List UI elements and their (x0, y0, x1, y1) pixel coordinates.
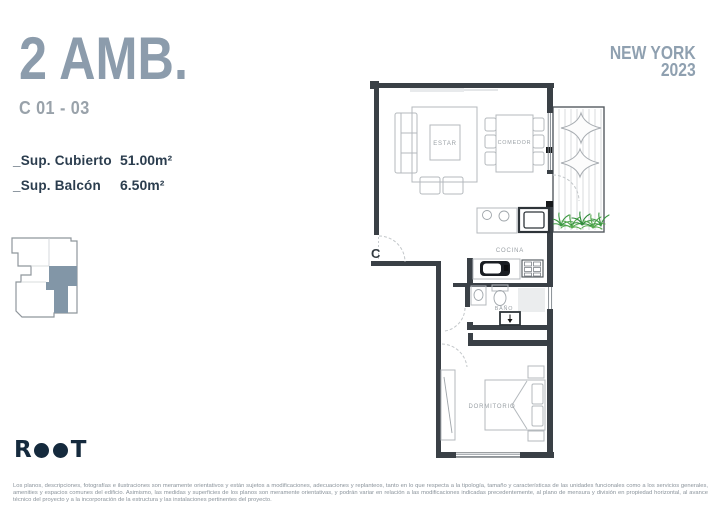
surface-value: 51.00m² (120, 152, 172, 168)
logo-letter-t: T (71, 441, 86, 459)
bathroom-label: BAÑO (495, 305, 513, 312)
bath-sink (471, 286, 486, 305)
surface-table: _Sup. Cubierto 51.00m² _Sup. Balcón 6.50… (13, 152, 243, 202)
pouf (420, 177, 440, 194)
logo-letter-r: R (14, 441, 31, 459)
brand-block: NEW YORK 2023 (610, 45, 696, 79)
curtain (410, 88, 464, 92)
chair (485, 135, 496, 148)
legal-disclaimer: Los planos, descripciones, fotografías e… (13, 483, 708, 505)
living-window (548, 113, 552, 170)
chair (533, 135, 544, 148)
living-label: ESTAR (433, 141, 457, 147)
bedroom: DORMITORIO (441, 366, 545, 441)
entry-door-arc (379, 236, 405, 262)
pantry-unit (522, 260, 543, 277)
bath-door-arc (445, 308, 465, 331)
logo-letter-o: O (53, 443, 68, 458)
laundry-area (518, 288, 545, 312)
sofa (395, 113, 417, 173)
title-block: 2 AMB. C 01 - 03 (19, 33, 220, 119)
living-room: ESTAR (395, 88, 498, 194)
dining-label: COMEDOR (498, 140, 532, 146)
surface-label: _Sup. Cubierto (13, 153, 120, 168)
surface-row-cubierto: _Sup. Cubierto 51.00m² (13, 152, 243, 168)
logo-letter-o: O (34, 443, 49, 458)
pillow (532, 406, 543, 426)
root-logo: R O O T (14, 441, 85, 459)
balcony (550, 107, 609, 232)
chair (485, 152, 496, 165)
kitchen-counter (477, 208, 517, 233)
pillow (532, 384, 543, 404)
bedroom-door-arc (442, 344, 467, 367)
nightstand (528, 366, 544, 378)
sink-bowl (499, 211, 509, 221)
chair (533, 152, 544, 165)
brand-line2: 2023 (610, 62, 696, 79)
bedroom-label: DORMITORIO (469, 404, 516, 410)
pouf (443, 177, 463, 194)
kitchen: COCINA (473, 208, 549, 279)
chair (485, 118, 496, 131)
unit-range: C 01 - 03 (19, 98, 200, 119)
floorplan: ESTAR COMEDOR COCINA (370, 75, 610, 465)
entrance-label: C (371, 246, 381, 261)
keyplan (6, 228, 106, 328)
surface-value: 6.50m² (120, 177, 164, 193)
sink-bowl (483, 211, 492, 220)
dining-area: COMEDOR (485, 115, 544, 172)
column-marker (546, 147, 553, 153)
kitchen-label: COCINA (496, 248, 524, 254)
column-marker (546, 201, 553, 207)
page-title: 2 AMB. (19, 33, 188, 85)
surface-label: _Sup. Balcón (13, 178, 120, 193)
nightstand (528, 431, 544, 441)
chair (533, 118, 544, 131)
bathroom: BAÑO (471, 285, 545, 325)
surface-row-balcon: _Sup. Balcón 6.50m² (13, 177, 243, 193)
